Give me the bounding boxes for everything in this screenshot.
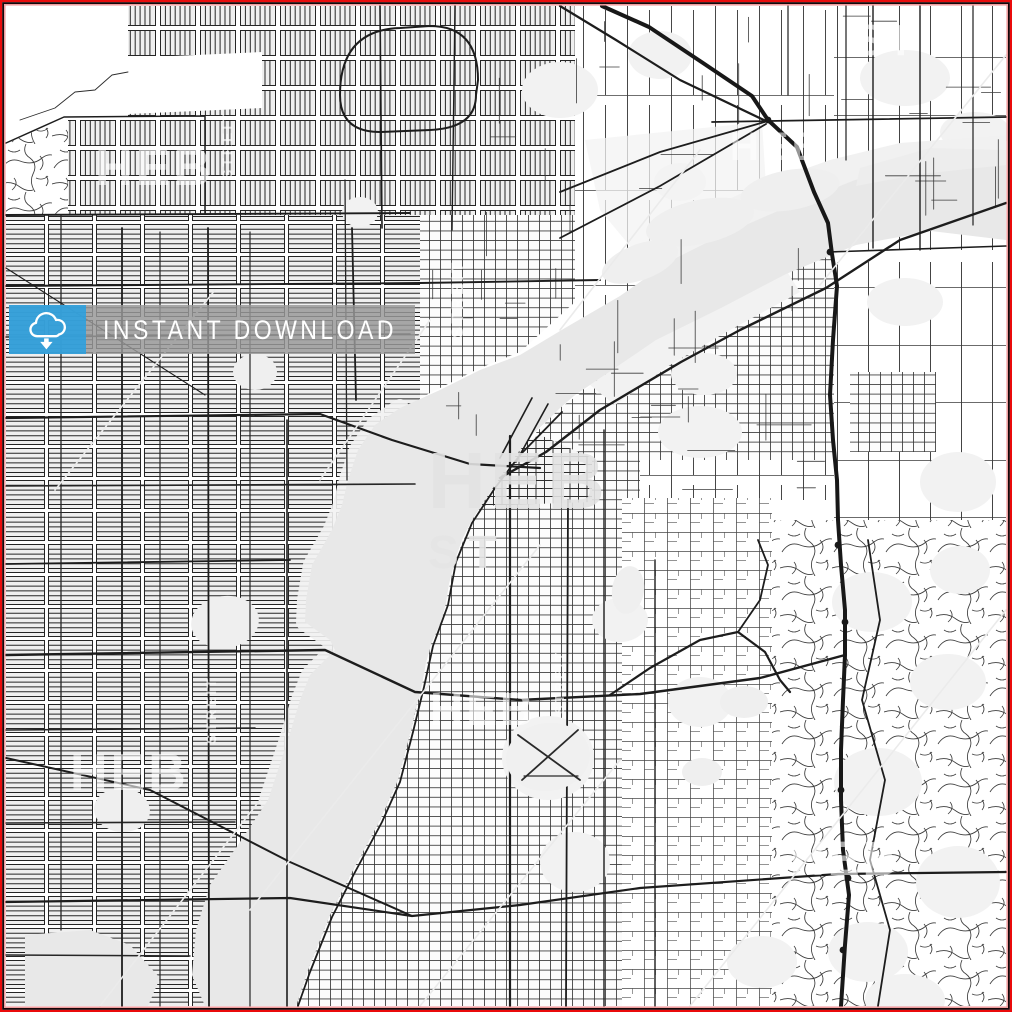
- svg-text:ST: ST: [428, 526, 507, 578]
- svg-text:HEB: HEB: [95, 139, 214, 197]
- svg-text:HEB: HEB: [70, 744, 189, 802]
- svg-text:HEB: HEB: [428, 436, 609, 525]
- svg-text:HEB: HEB: [430, 683, 536, 735]
- svg-text:STREIT: STREIT: [448, 260, 467, 338]
- svg-text:STREIT: STREIT: [203, 676, 219, 744]
- svg-text:INSTANT DOWNLOAD: INSTANT DOWNLOAD: [103, 315, 397, 345]
- svg-text:ST: ST: [855, 16, 917, 65]
- svg-text:HEB: HEB: [730, 125, 823, 169]
- svg-text:STREIT: STREIT: [552, 650, 567, 714]
- svg-text:STREIT: STREIT: [219, 111, 235, 179]
